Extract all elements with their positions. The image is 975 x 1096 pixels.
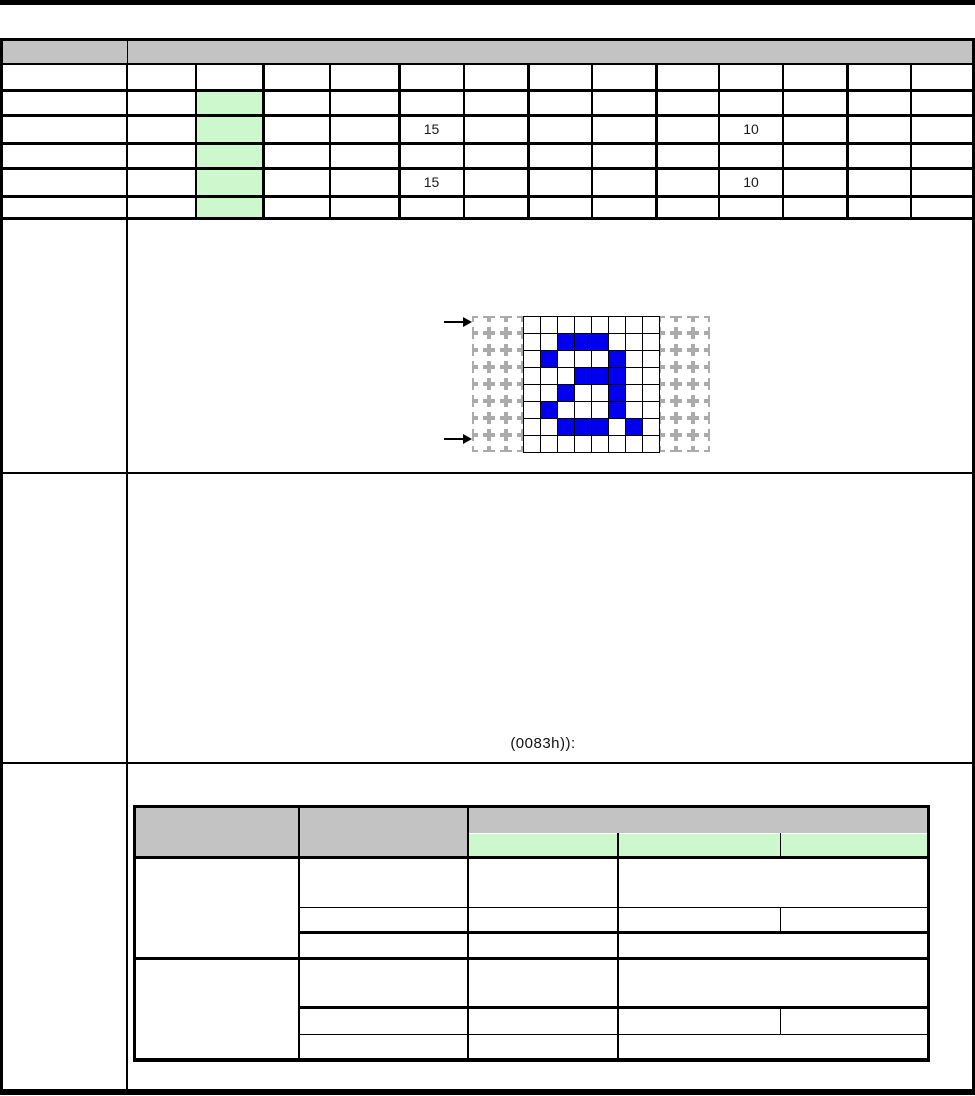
glyph-grid-dashed-cell [506,418,523,435]
row-pointer-arrowhead [463,434,472,444]
glyph-grid-dashed-cell [676,435,693,452]
glyph-grid-dashed-cell [693,418,710,435]
glyph-pixel-on [557,384,574,401]
table1-col-rule [195,64,197,218]
section-divider [0,472,975,474]
glyph-grid-dashed-cell [693,316,710,333]
table1-green-cell [197,90,262,115]
glyph-grid-dashed-cell [693,350,710,367]
glyph-grid-dashed-cell [472,367,489,384]
table1-value-cell: 15 [399,115,464,143]
glyph-grid-hline [523,333,660,334]
glyph-pixel-on [608,350,625,367]
table1-col-rule [910,64,912,218]
table2-outer-border-bottom [133,1058,930,1062]
glyph-grid-dashed-cell [659,435,676,452]
table1-row-rule [0,217,975,220]
table2-row-rule [299,1034,927,1035]
glyph-grid-dashed-cell [489,333,506,350]
glyph-grid-dashed-cell [676,350,693,367]
glyph-grid-dashed-cell [659,384,676,401]
row-pointer-arrow [444,321,464,323]
glyph-grid-dashed-cell [506,435,523,452]
glyph-pixel-on [591,418,608,435]
glyph-grid-dashed-cell [693,435,710,452]
table2-gray-header-left [136,833,468,857]
table1-row-rule [0,63,975,65]
glyph-grid-hline [523,418,660,419]
glyph-grid-dashed-cell [472,384,489,401]
table2-green-subheader [468,834,927,857]
glyph-grid-hline [523,435,660,436]
glyph-grid-hline [523,316,660,317]
table2-split-col-rule [780,1007,781,1034]
table1-col-rule [329,64,331,218]
glyph-grid-dashed-cell [693,384,710,401]
table2-row-rule [299,1006,927,1009]
table1-col-rule [527,64,530,218]
glyph-pixel-on [540,350,557,367]
glyph-grid-dashed-cell [659,316,676,333]
glyph-pixel-on [608,384,625,401]
table2-group-separator [136,957,927,960]
header-band-label-cell [3,41,127,64]
table1-col-rule [846,64,849,218]
table2-outer-border-right [927,805,930,1062]
table2-row-rule [299,931,927,934]
table1-green-cell [197,143,262,168]
table1-value-cell: 10 [719,168,783,196]
table1-row-rule [0,195,975,198]
glyph-grid-dashed-cell [693,367,710,384]
glyph-pixel-on [540,401,557,418]
glyph-grid-hline [523,401,660,402]
glyph-grid-dashed-cell [506,316,523,333]
glyph-grid-dashed-cell [472,435,489,452]
table1-green-cell [197,115,262,143]
glyph-pixel-on [591,333,608,350]
glyph-grid-dashed-cell [676,333,693,350]
glyph-pixel-on [574,418,591,435]
table2-header-bottom-rule [136,856,927,859]
table1-row-rule [0,167,975,170]
table1-green-cell [197,168,262,196]
address-note-text: (0083h)): [468,735,618,752]
glyph-grid-dashed-cell [506,401,523,418]
glyph-grid-dashed-cell [489,418,506,435]
table1-col-rule [262,64,265,218]
glyph-pixel-on [557,333,574,350]
glyph-grid-hline [523,350,660,351]
glyph-grid-dashed-cell [472,333,489,350]
glyph-grid-dashed-cell [489,350,506,367]
glyph-grid-dashed-cell [693,333,710,350]
table1-row-rule [0,142,975,145]
table1-green-cell [197,196,262,218]
glyph-grid-hline [523,367,660,368]
glyph-grid-dashed-cell [659,350,676,367]
glyph-grid-dashed-cell [489,435,506,452]
glyph-grid-dashed-cell [472,401,489,418]
glyph-pixel-on [574,367,591,384]
glyph-grid-dashed-cell [676,384,693,401]
glyph-grid-dashed-cell [506,333,523,350]
table1-col-rule [655,64,658,218]
label-column-divider [126,41,128,1089]
glyph-pixel-on [591,367,608,384]
datasheet-page: (0083h)): 15101510 [0,0,975,1096]
table2-subheader-divider [617,833,619,857]
header-band-title-cell [128,41,972,64]
glyph-grid-dashed-cell [489,367,506,384]
table2-subheader-divider [780,833,781,857]
glyph-grid-dashed-cell [489,316,506,333]
glyph-pixel-on [608,401,625,418]
table2-gray-header [136,808,927,833]
glyph-grid-dashed-cell [506,350,523,367]
glyph-grid-dashed-cell [472,316,489,333]
glyph-grid-dashed-cell [659,418,676,435]
glyph-grid-dashed-cell [506,367,523,384]
glyph-grid-hline [523,384,660,385]
glyph-grid-dashed-cell [659,333,676,350]
table2-outer-border-top [133,805,930,808]
table2-outer-border-left [133,805,136,1062]
table2-split-col-rule [780,907,781,932]
table1-value-cell: 10 [719,115,783,143]
glyph-pixel-on [557,418,574,435]
glyph-grid-dashed-cell [472,418,489,435]
glyph-pixel-on [574,333,591,350]
glyph-pixel-on [625,418,642,435]
section-divider [0,762,975,764]
table1-row-rule [0,114,975,117]
glyph-grid-dashed-cell [659,367,676,384]
table1-row-rule [0,89,975,92]
page-top-rule [0,0,975,5]
glyph-grid-dashed-cell [489,384,506,401]
glyph-grid-dashed-cell [676,418,693,435]
glyph-grid-dashed-cell [676,367,693,384]
glyph-grid-dashed-cell [693,401,710,418]
table2-row-rule [299,907,927,908]
row-pointer-arrow [444,438,464,440]
glyph-grid-hline [523,452,660,453]
glyph-grid-dashed-cell [676,401,693,418]
glyph-grid-dashed-cell [472,350,489,367]
page-bottom-rule [0,1089,975,1095]
glyph-pixel-on [608,367,625,384]
glyph-grid-dashed-cell [676,316,693,333]
row-pointer-arrowhead [463,317,472,327]
glyph-grid-dashed-cell [659,401,676,418]
glyph-grid-dashed-cell [506,384,523,401]
table1-col-rule [591,64,593,218]
glyph-grid-dashed-cell [489,401,506,418]
table1-value-cell: 15 [399,168,464,196]
